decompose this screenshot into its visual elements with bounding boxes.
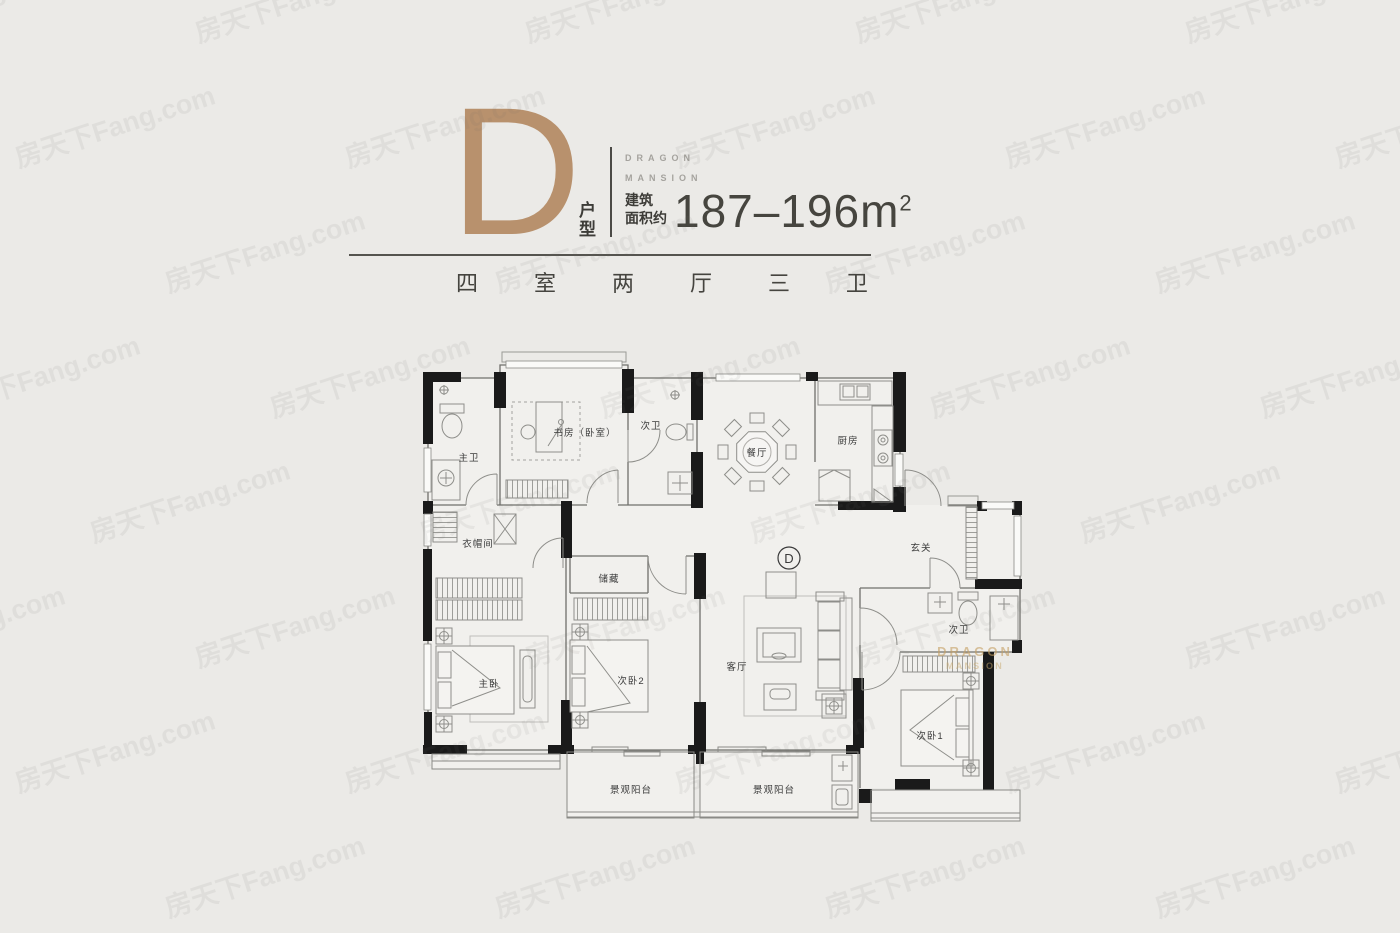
- label-study: 书房（卧室）: [553, 427, 616, 439]
- label-bed2: 次卧2: [617, 675, 644, 687]
- spec-char: 两: [612, 266, 634, 298]
- site-watermark: 房天下Fang.com: [9, 74, 219, 176]
- site-watermark: 房天下Fang.com: [0, 324, 144, 426]
- site-watermark: 房天下Fang.com: [849, 0, 1059, 50]
- site-watermark: 房天下Fang.com: [819, 824, 1029, 926]
- area-prefix-line2: 面积约: [625, 209, 669, 227]
- brand-line-1: DRAGON: [625, 153, 695, 163]
- svg-text:DRAGON: DRAGON: [937, 644, 1013, 659]
- spec-char: 室: [534, 266, 556, 298]
- label-bath2: 次卫: [640, 420, 661, 432]
- site-watermark: 房天下Fang.com: [189, 574, 399, 676]
- unit-letter: D: [450, 80, 581, 262]
- label-kitchen: 厨房: [837, 435, 858, 447]
- site-watermark: 房天下Fang.com: [9, 699, 219, 801]
- header-rule: [349, 254, 871, 256]
- area-prefix: 建筑 面积约: [625, 191, 669, 227]
- site-watermark: 房天下Fang.com: [84, 449, 294, 551]
- site-watermark: 房天下Fang.com: [159, 824, 369, 926]
- spec-row: 四 室 两 厅 三 卫: [456, 266, 868, 298]
- site-watermark: 房天下Fang.com: [1329, 699, 1400, 801]
- site-watermark: 房天下Fang.com: [1179, 0, 1389, 50]
- label-foyer: 玄关: [910, 542, 931, 554]
- header-divider: [610, 147, 612, 237]
- label-master-bed: 主卧: [478, 678, 499, 690]
- area-value: 187–196m2: [674, 184, 913, 238]
- site-watermark: 房天下Fang.com: [1074, 449, 1284, 551]
- site-watermark: 房天下Fang.com: [159, 199, 369, 301]
- gold-brand-watermark: DRAGON MANSION: [937, 644, 1013, 671]
- spec-char: 三: [768, 266, 790, 298]
- label-bed1: 次卧1: [916, 730, 943, 742]
- label-living: 客厅: [726, 661, 747, 673]
- site-watermark: 房天下Fang.com: [1149, 199, 1359, 301]
- label-cloak: 衣帽间: [462, 538, 494, 550]
- svg-text:MANSION: MANSION: [946, 661, 1004, 671]
- label-master-bath: 主卫: [458, 452, 479, 464]
- floorplan-page: D 户型 DRAGON MANSION 建筑 面积约 187–196m2 四 室…: [0, 0, 1400, 933]
- spec-char: 卫: [846, 266, 868, 298]
- area-superscript: 2: [899, 191, 912, 216]
- label-dining: 餐厅: [746, 447, 767, 459]
- floorplan-drawing: D 主卫 书房（卧室） 次卫 餐厅 厨房 玄关 衣帽间 储藏 主卧 次卧2 客厅…: [418, 348, 1040, 830]
- label-storage: 储藏: [598, 573, 619, 585]
- label-balcony2: 景观阳台: [753, 784, 795, 796]
- label-balcony1: 景观阳台: [610, 784, 652, 796]
- site-watermark: 房天下Fang.com: [519, 0, 729, 50]
- site-watermark: 房天下Fang.com: [489, 824, 699, 926]
- site-watermark: 房天下Fang.com: [1329, 74, 1400, 176]
- svg-text:D: D: [784, 551, 793, 566]
- spec-char: 四: [456, 266, 478, 298]
- site-watermark: 房天下Fang.com: [1149, 824, 1359, 926]
- brand-line-2: MANSION: [625, 173, 703, 183]
- spec-char: 厅: [690, 266, 712, 298]
- label-bath3: 次卫: [948, 624, 969, 636]
- area-prefix-line1: 建筑: [625, 191, 653, 209]
- site-watermark: 房天下Fang.com: [0, 574, 69, 676]
- site-watermark: 房天下Fang.com: [669, 74, 879, 176]
- site-watermark: 房天下Fang.com: [1179, 574, 1389, 676]
- area-range: 187–196m: [674, 185, 899, 237]
- unit-type-label: 户型: [578, 201, 597, 239]
- site-watermark: 房天下Fang.com: [189, 0, 399, 50]
- site-watermark: 房天下Fang.com: [0, 0, 69, 50]
- site-watermark: 房天下Fang.com: [999, 74, 1209, 176]
- site-watermark: 房天下Fang.com: [1254, 324, 1400, 426]
